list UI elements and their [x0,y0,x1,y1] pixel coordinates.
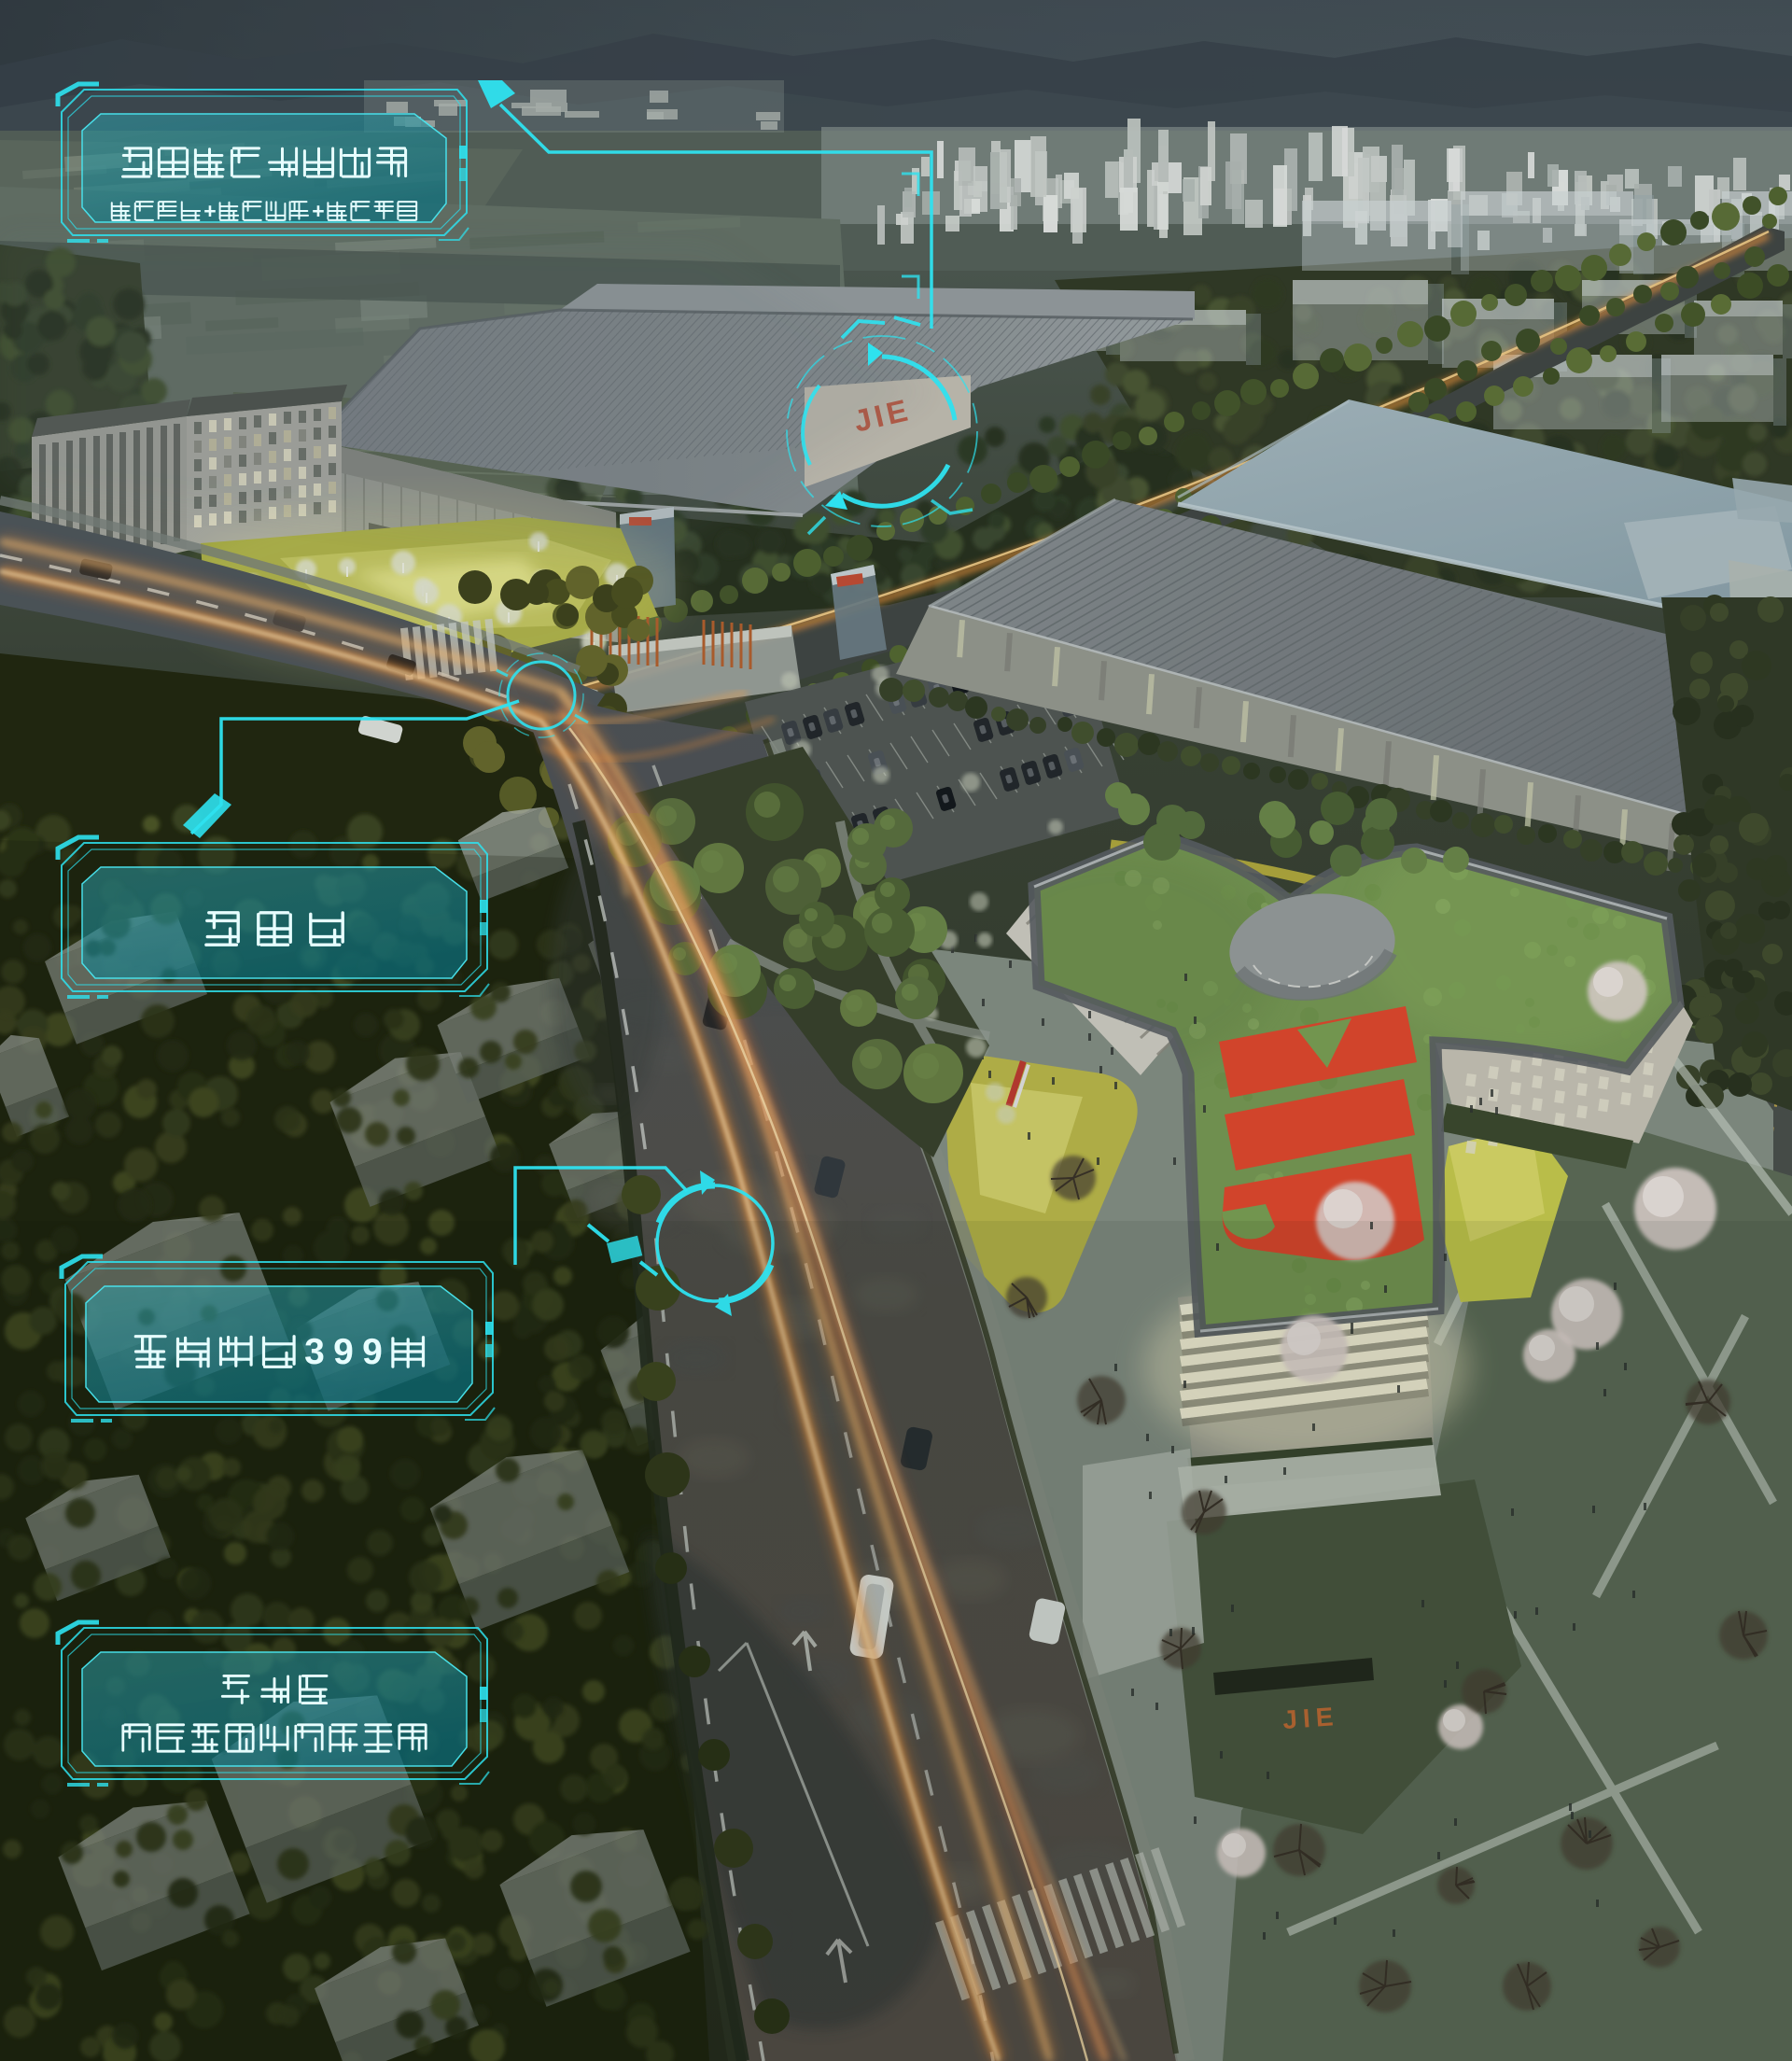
svg-text:3: 3 [304,1332,325,1372]
svg-text:+: + [203,199,216,223]
svg-text:9: 9 [333,1332,354,1372]
svg-text:9: 9 [362,1332,383,1372]
svg-text:+: + [312,199,324,223]
